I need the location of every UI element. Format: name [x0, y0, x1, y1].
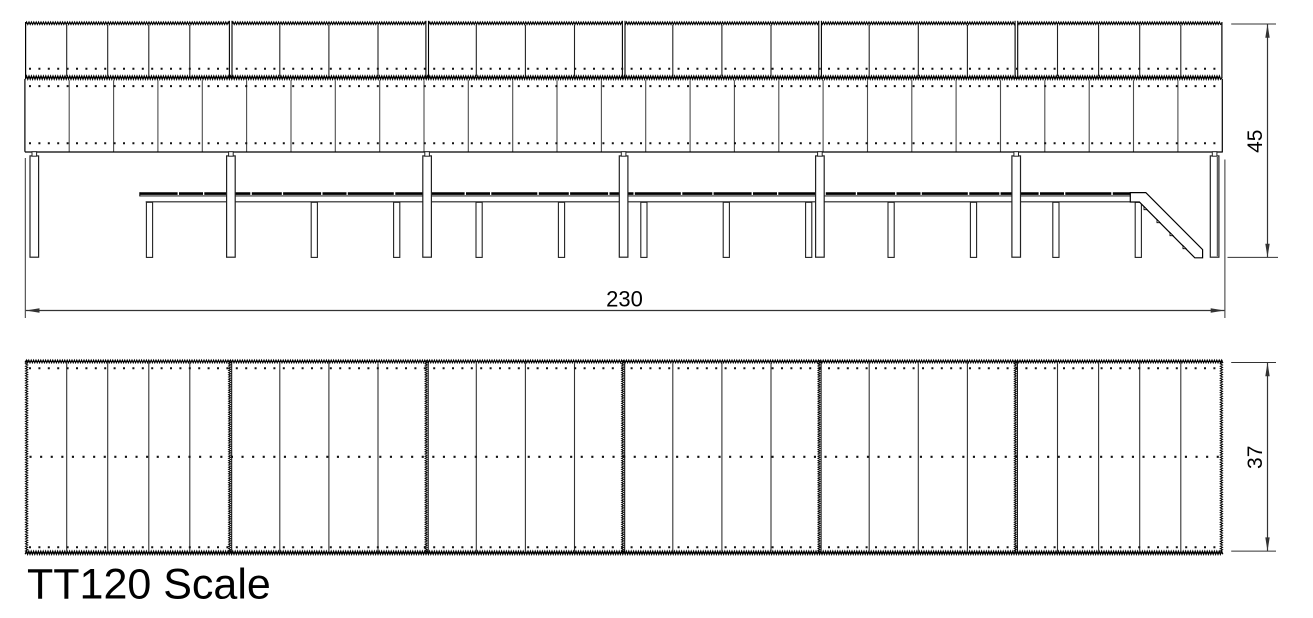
- svg-text:230: 230: [606, 287, 643, 312]
- svg-text:37: 37: [1244, 446, 1267, 469]
- svg-text:TT120 Scale: TT120 Scale: [27, 561, 271, 609]
- svg-text:45: 45: [1244, 130, 1267, 153]
